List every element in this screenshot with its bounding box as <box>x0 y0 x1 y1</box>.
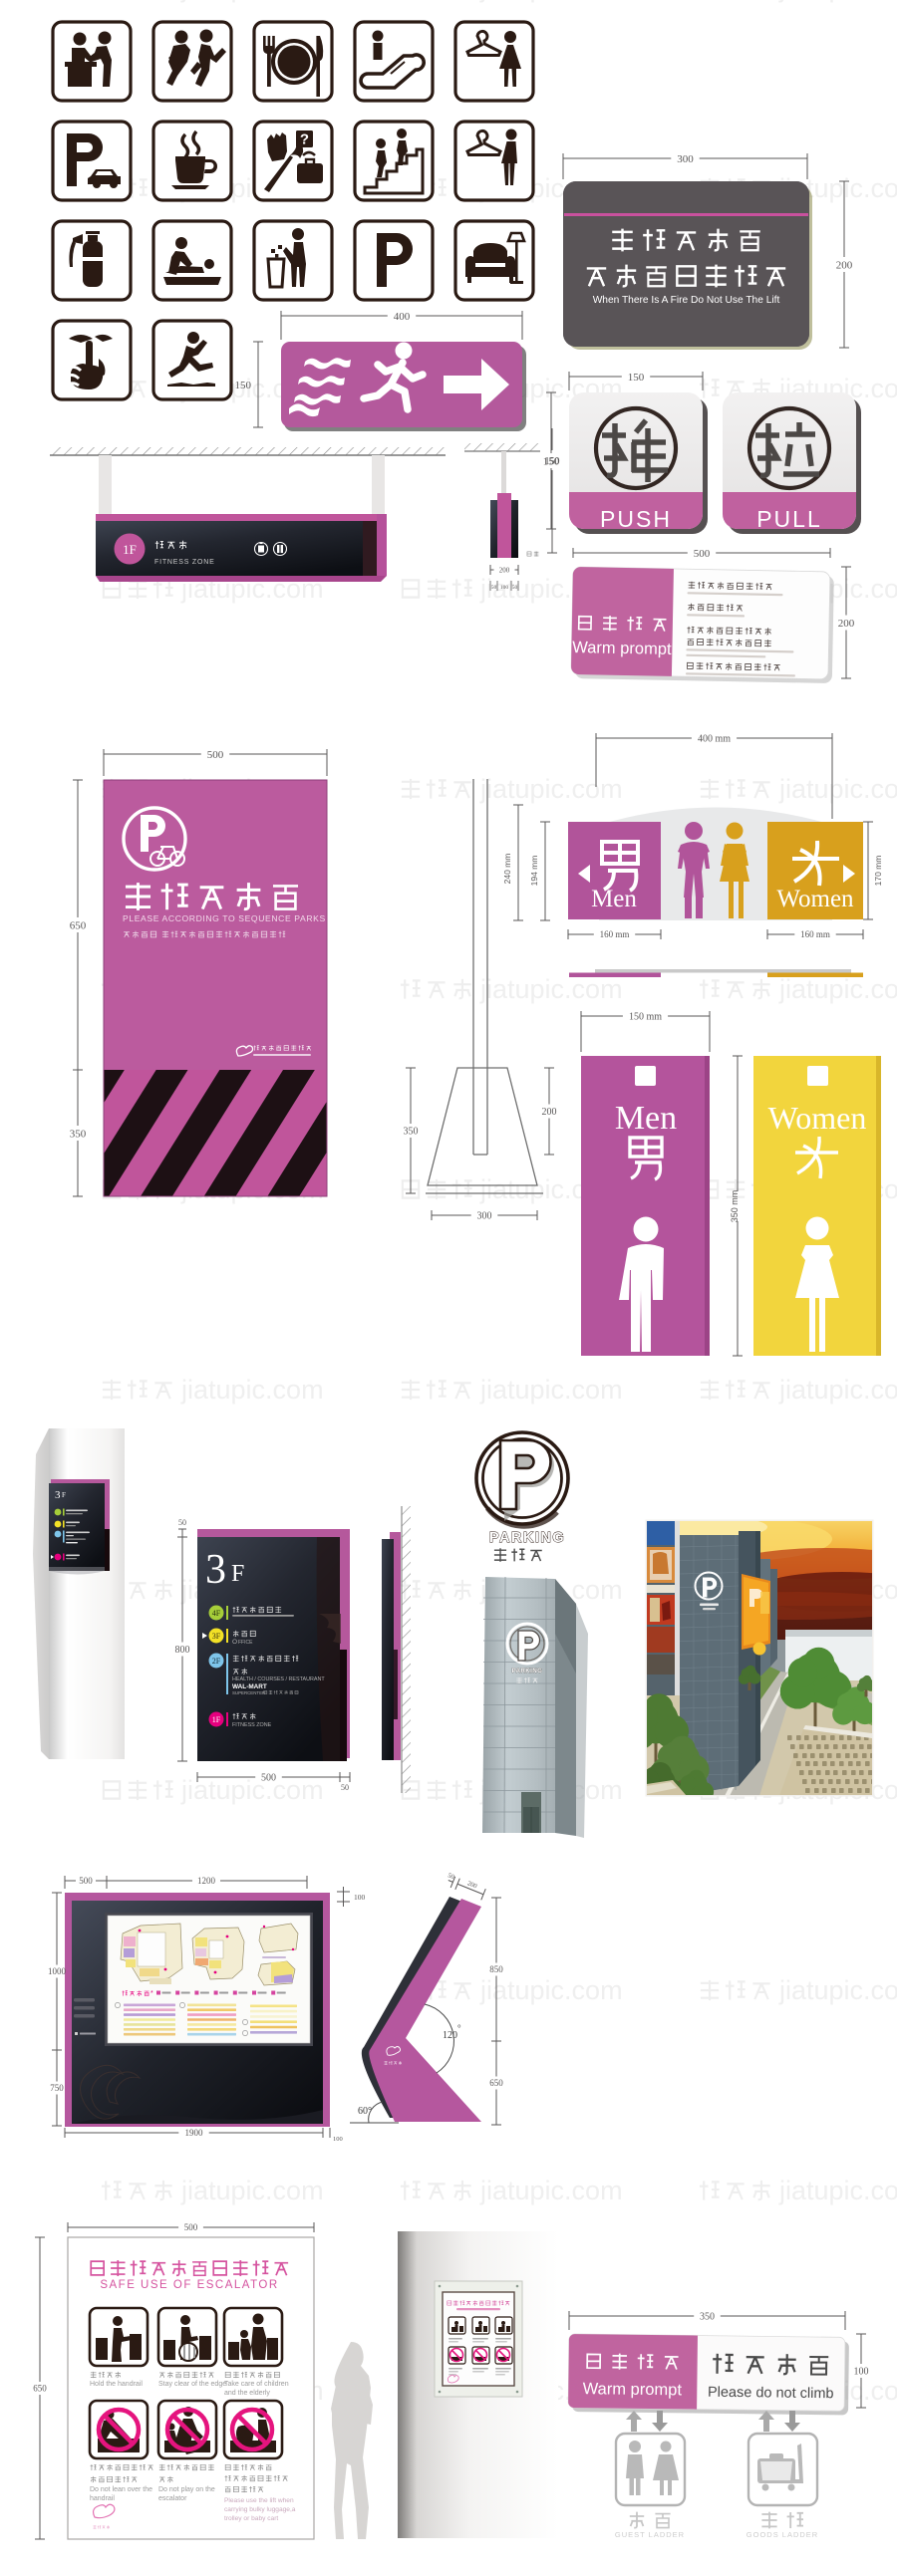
svg-text:500: 500 <box>261 1773 276 1784</box>
svg-text:150: 150 <box>543 455 560 467</box>
svg-text:When There Is A Fire Do Not Us: When There Is A Fire Do Not Use The Lift <box>593 295 780 306</box>
svg-text:100: 100 <box>354 1893 366 1902</box>
svg-text:jiatupic.com: jiatupic.com <box>180 0 324 3</box>
svg-text:850: 850 <box>489 1964 503 1974</box>
svg-text:350 mm: 350 mm <box>730 1190 740 1223</box>
svg-text:O: O <box>232 1639 237 1646</box>
svg-text:500: 500 <box>694 548 711 560</box>
svg-text:and the elderly: and the elderly <box>224 2390 270 2397</box>
svg-text:PARKING: PARKING <box>489 1530 565 1546</box>
svg-text:160 mm: 160 mm <box>600 929 630 939</box>
svg-text:jiatupic.com: jiatupic.com <box>479 974 623 1004</box>
svg-text:150: 150 <box>235 380 252 391</box>
svg-text:SUPERCENTER: SUPERCENTER <box>232 1690 265 1695</box>
svg-text:350: 350 <box>404 1127 419 1138</box>
svg-text:3: 3 <box>55 1489 61 1501</box>
svg-text:60°: 60° <box>358 2106 372 2117</box>
svg-text:jiatupic.com: jiatupic.com <box>778 0 897 3</box>
svg-text:50: 50 <box>341 1783 349 1792</box>
svg-text:200: 200 <box>499 566 510 574</box>
svg-text:1F: 1F <box>212 1715 221 1724</box>
svg-text:FITNESS ZONE: FITNESS ZONE <box>232 1722 272 1728</box>
svg-text:jiatupic.com: jiatupic.com <box>180 1775 324 1805</box>
svg-text:Warm prompt: Warm prompt <box>583 2380 683 2399</box>
svg-text:120: 120 <box>443 2030 457 2041</box>
svg-text:GUEST LADDER: GUEST LADDER <box>615 2530 685 2539</box>
svg-text:1200: 1200 <box>197 1876 216 1886</box>
svg-text:240 mm: 240 mm <box>502 854 512 885</box>
svg-text:500: 500 <box>184 2222 198 2232</box>
svg-text:100: 100 <box>333 2136 343 2143</box>
svg-text:300: 300 <box>677 153 694 165</box>
svg-text:50: 50 <box>178 1518 186 1527</box>
svg-text:650: 650 <box>33 2384 47 2394</box>
svg-text:PULL: PULL <box>756 506 822 532</box>
svg-text:500: 500 <box>79 1876 93 1886</box>
svg-text:194 mm: 194 mm <box>529 856 539 887</box>
svg-text:200: 200 <box>542 1107 557 1118</box>
svg-text:Warm prompt: Warm prompt <box>572 639 672 658</box>
svg-text:jiatupic.com: jiatupic.com <box>778 774 897 804</box>
svg-text:F: F <box>62 1491 66 1499</box>
svg-text:1000: 1000 <box>48 1966 67 1976</box>
svg-text:800: 800 <box>175 1645 190 1656</box>
svg-text:400 mm: 400 mm <box>698 734 731 745</box>
svg-text:1900: 1900 <box>185 2128 204 2138</box>
svg-text:Please do not climb: Please do not climb <box>708 2385 834 2403</box>
svg-text:150 mm: 150 mm <box>629 1012 662 1023</box>
svg-text:jiatupic.com: jiatupic.com <box>778 2176 897 2205</box>
svg-text:jiatupic.com: jiatupic.com <box>479 774 623 804</box>
svg-text:F: F <box>231 1561 244 1587</box>
svg-text:200: 200 <box>836 259 853 271</box>
svg-text:650: 650 <box>489 2078 503 2088</box>
svg-text:3: 3 <box>205 1547 226 1593</box>
svg-text:350: 350 <box>700 2312 715 2323</box>
svg-text:50: 50 <box>491 585 497 591</box>
svg-text:jiatupic.com: jiatupic.com <box>180 1375 324 1405</box>
svg-text:jiatupic.com: jiatupic.com <box>778 974 897 1004</box>
svg-text:jiatupic.com: jiatupic.com <box>778 1375 897 1405</box>
svg-text:HEALTH / COURSES / RESTAURANT: HEALTH / COURSES / RESTAURANT <box>232 1676 325 1682</box>
svg-text:Women: Women <box>776 886 854 912</box>
svg-text:SAFE USE OF ESCALATOR: SAFE USE OF ESCALATOR <box>100 2279 278 2291</box>
svg-text:Take care of children: Take care of children <box>224 2381 289 2388</box>
svg-text:300: 300 <box>477 1211 492 1222</box>
svg-text:jiatupic.com: jiatupic.com <box>479 0 623 3</box>
svg-text:100: 100 <box>854 2367 869 2378</box>
svg-text:650: 650 <box>70 919 87 931</box>
svg-text:3F: 3F <box>212 1632 221 1641</box>
svg-text:1F: 1F <box>123 542 137 557</box>
svg-text:Do not lean over the: Do not lean over the <box>90 2486 152 2493</box>
svg-text:400: 400 <box>394 311 411 323</box>
svg-text:escalator: escalator <box>158 2495 187 2502</box>
svg-text:100: 100 <box>500 585 509 591</box>
svg-text:PUSH: PUSH <box>600 506 672 532</box>
svg-text:Women: Women <box>768 1100 867 1136</box>
svg-text:PLEASE ACCORDING TO SEQUENCE P: PLEASE ACCORDING TO SEQUENCE PARKS <box>123 913 326 923</box>
svg-text:160 mm: 160 mm <box>800 929 830 939</box>
svg-text:Men: Men <box>591 886 637 912</box>
svg-text:FITNESS ZONE: FITNESS ZONE <box>154 559 215 566</box>
svg-text:Hold the handrail: Hold the handrail <box>90 2381 143 2388</box>
svg-text:350: 350 <box>70 1128 87 1140</box>
svg-text:WAL-MART: WAL-MART <box>232 1683 267 1690</box>
svg-text:GOODS LADDER: GOODS LADDER <box>747 2530 818 2539</box>
svg-text:500: 500 <box>207 749 224 761</box>
svg-text:*: * <box>150 1990 153 1997</box>
svg-text:150: 150 <box>628 372 645 384</box>
svg-text:carrying bulky luggage,a: carrying bulky luggage,a <box>224 2506 296 2513</box>
svg-text:handrail: handrail <box>90 2495 115 2502</box>
svg-text:200: 200 <box>838 618 855 630</box>
svg-text:50: 50 <box>512 585 518 591</box>
svg-text:jiatupic.com: jiatupic.com <box>180 2176 324 2205</box>
svg-text:jiatupic.com: jiatupic.com <box>479 1375 623 1405</box>
svg-text:jiatupic.com: jiatupic.com <box>479 1975 623 2005</box>
svg-text:FFICE: FFICE <box>238 1640 253 1646</box>
svg-text:4F: 4F <box>212 1609 221 1618</box>
svg-text:Stay clear of the edge: Stay clear of the edge <box>158 2381 226 2388</box>
svg-text:Do not play on the: Do not play on the <box>158 2486 215 2493</box>
svg-text:PARKING: PARKING <box>512 1669 543 1674</box>
svg-text:170 mm: 170 mm <box>873 856 883 887</box>
svg-text:Men: Men <box>615 1100 677 1137</box>
svg-text:trolley or baby cart: trolley or baby cart <box>224 2515 278 2522</box>
svg-text:Please use the lift when: Please use the lift when <box>224 2497 294 2504</box>
svg-text:jiatupic.com: jiatupic.com <box>479 2176 623 2205</box>
svg-text:°: ° <box>457 2023 461 2033</box>
svg-text:2F: 2F <box>212 1657 221 1666</box>
svg-text:jiatupic.com: jiatupic.com <box>778 1975 897 2005</box>
svg-text:750: 750 <box>50 2083 64 2093</box>
